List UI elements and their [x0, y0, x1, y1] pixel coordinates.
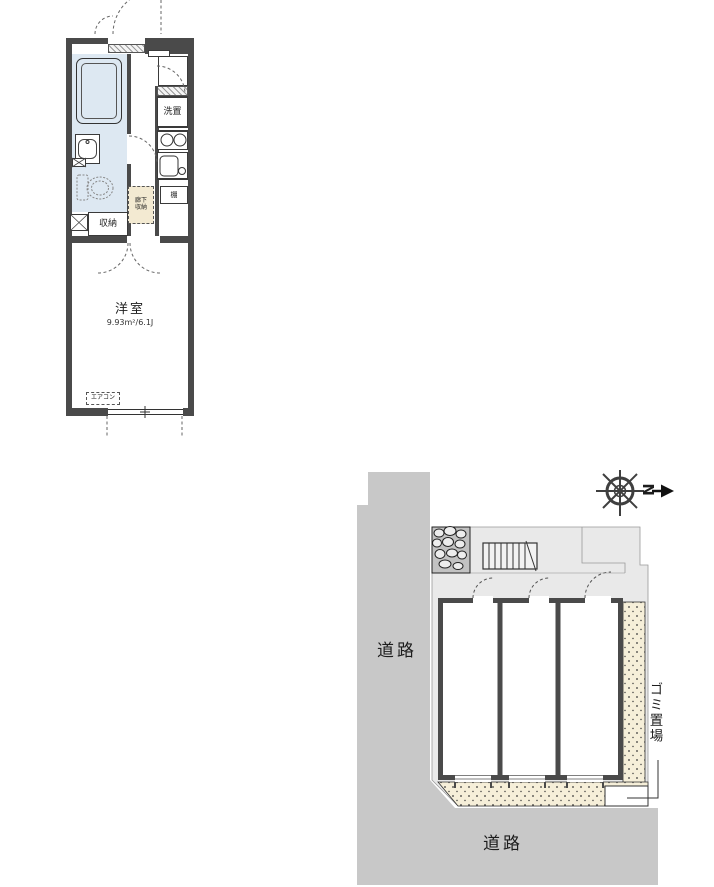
window-tick [140, 406, 150, 418]
stove-burners [86, 134, 186, 176]
north-label: N [639, 483, 656, 496]
compass-icon [596, 470, 644, 516]
garbage-spot [605, 786, 648, 806]
cross-marks [70, 158, 88, 231]
toilet-icon [77, 175, 113, 200]
road-left-label: 道路 [377, 642, 417, 662]
walkway-right [623, 602, 645, 788]
floorplan-page: 洗置 棚 廊下収納 収納 洋室 9.93m²/6.1J エアコン [0, 0, 714, 887]
site-plan: 道路 道路 ゴミ置場 N [355, 470, 714, 887]
garbage-area-label: ゴミ置場 [646, 682, 662, 744]
floor-plan-linework [0, 0, 240, 450]
unit-floor-plan: 洗置 棚 廊下収納 収納 洋室 9.93m²/6.1J エアコン [0, 0, 240, 450]
stairs-icon [483, 541, 537, 571]
stone-garden-icon [432, 527, 470, 574]
building-footprint [441, 572, 621, 788]
road-bottom-label: 道路 [483, 835, 523, 855]
site-plan-drawing [355, 470, 714, 887]
